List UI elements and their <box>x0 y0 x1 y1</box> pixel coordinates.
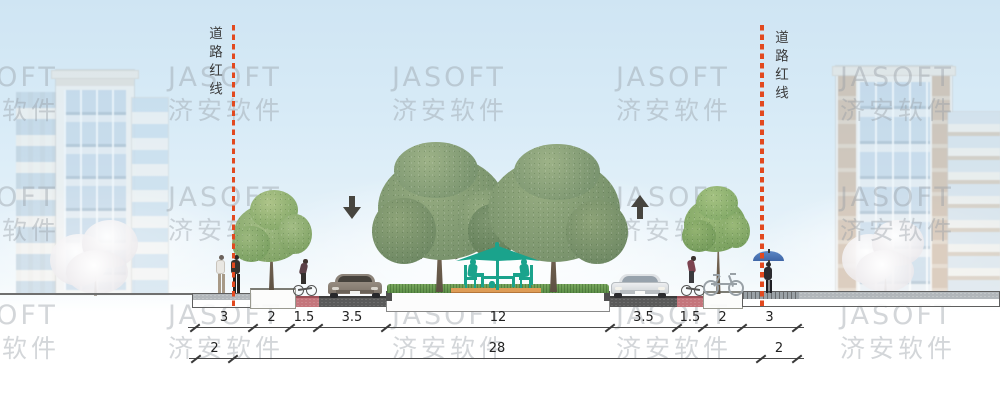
annotation-layer: 道路红线 道路红线 321.53.5123.51.5232282 <box>0 0 1000 405</box>
dimension-value: 12 <box>478 310 518 325</box>
dimension-value: 28 <box>477 341 517 356</box>
dimension-value: 2 <box>759 341 799 356</box>
road-cross-section-canvas: JASOFT济安软件JASOFT济安软件JASOFT济安软件JASOFT济安软件… <box>0 0 1000 405</box>
dimension-value: 3.5 <box>332 310 372 325</box>
dimension-value: 2 <box>703 310 743 325</box>
dimension-value: 1.5 <box>284 310 324 325</box>
dimension-line <box>188 327 804 328</box>
dimension-value: 3 <box>204 310 244 325</box>
dimension-value: 3 <box>750 310 790 325</box>
dimension-value: 3.5 <box>624 310 664 325</box>
dimension-value: 2 <box>195 341 235 356</box>
dimension-layer: 321.53.5123.51.5232282 <box>0 0 1000 405</box>
dimension-line <box>189 358 804 359</box>
